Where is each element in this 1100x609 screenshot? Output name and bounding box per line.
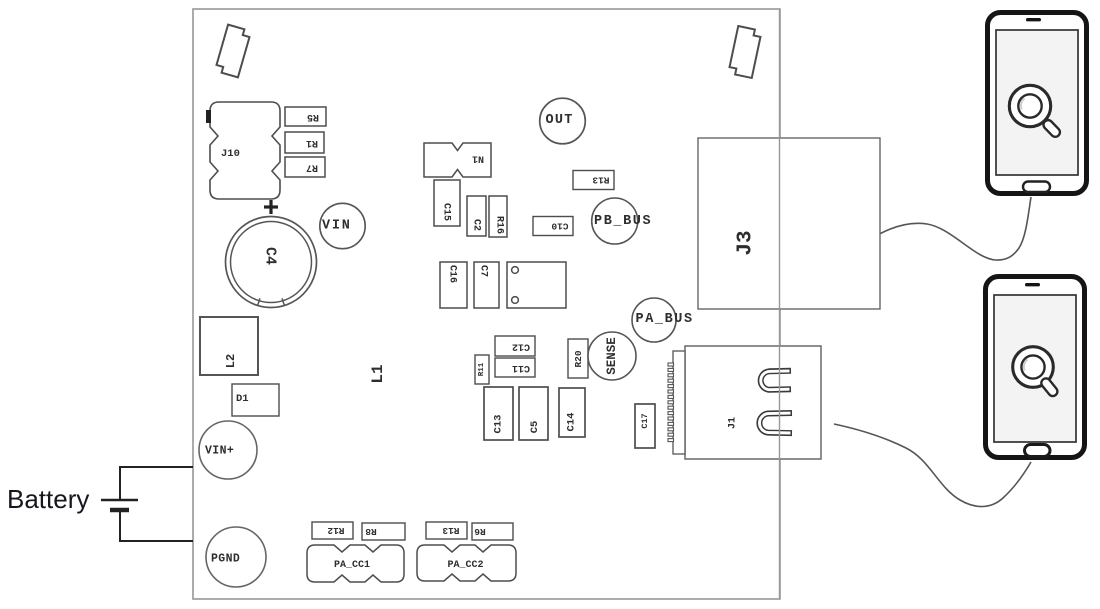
svg-text:J10: J10 xyxy=(221,148,240,160)
svg-text:R8: R8 xyxy=(365,526,377,537)
svg-text:VIN: VIN xyxy=(322,219,352,234)
svg-text:R12: R12 xyxy=(327,525,344,536)
svg-text:PA_CC1: PA_CC1 xyxy=(334,560,370,571)
svg-text:Battery: Battery xyxy=(7,484,89,514)
svg-text:R7: R7 xyxy=(306,162,318,173)
svg-text:R13: R13 xyxy=(442,525,459,536)
svg-text:D1: D1 xyxy=(236,393,249,405)
svg-text:PGND: PGND xyxy=(211,553,240,566)
svg-text:N1: N1 xyxy=(472,153,484,164)
svg-text:SENSE: SENSE xyxy=(605,337,619,375)
svg-text:C2: C2 xyxy=(471,219,482,231)
svg-text:L2: L2 xyxy=(224,354,238,368)
svg-text:R5: R5 xyxy=(307,111,319,122)
svg-text:C5: C5 xyxy=(529,421,541,434)
svg-text:C16: C16 xyxy=(447,265,458,283)
svg-text:C14: C14 xyxy=(566,413,578,432)
svg-text:VIN+: VIN+ xyxy=(205,445,234,458)
svg-text:C13: C13 xyxy=(493,415,505,434)
svg-text:PA_BUS: PA_BUS xyxy=(636,312,694,327)
svg-text:C17: C17 xyxy=(640,413,650,428)
svg-text:C7: C7 xyxy=(478,265,489,277)
svg-text:R1: R1 xyxy=(306,137,318,148)
svg-text:OUT: OUT xyxy=(546,113,574,128)
svg-text:C10: C10 xyxy=(551,221,568,232)
svg-text:R11: R11 xyxy=(478,362,486,376)
svg-text:PA_CC2: PA_CC2 xyxy=(447,560,483,571)
svg-text:R16: R16 xyxy=(494,216,505,234)
svg-text:J3: J3 xyxy=(735,230,758,255)
svg-text:R20: R20 xyxy=(573,350,584,367)
svg-text:C12: C12 xyxy=(512,341,530,352)
svg-text:C15: C15 xyxy=(441,203,452,221)
svg-text:R6: R6 xyxy=(474,526,486,537)
svg-text:J1: J1 xyxy=(728,417,739,429)
svg-text:R13: R13 xyxy=(592,175,609,186)
svg-text:L1: L1 xyxy=(369,364,387,383)
svg-text:C4: C4 xyxy=(262,247,279,265)
svg-text:C11: C11 xyxy=(512,362,530,373)
svg-text:PB_BUS: PB_BUS xyxy=(594,214,652,229)
